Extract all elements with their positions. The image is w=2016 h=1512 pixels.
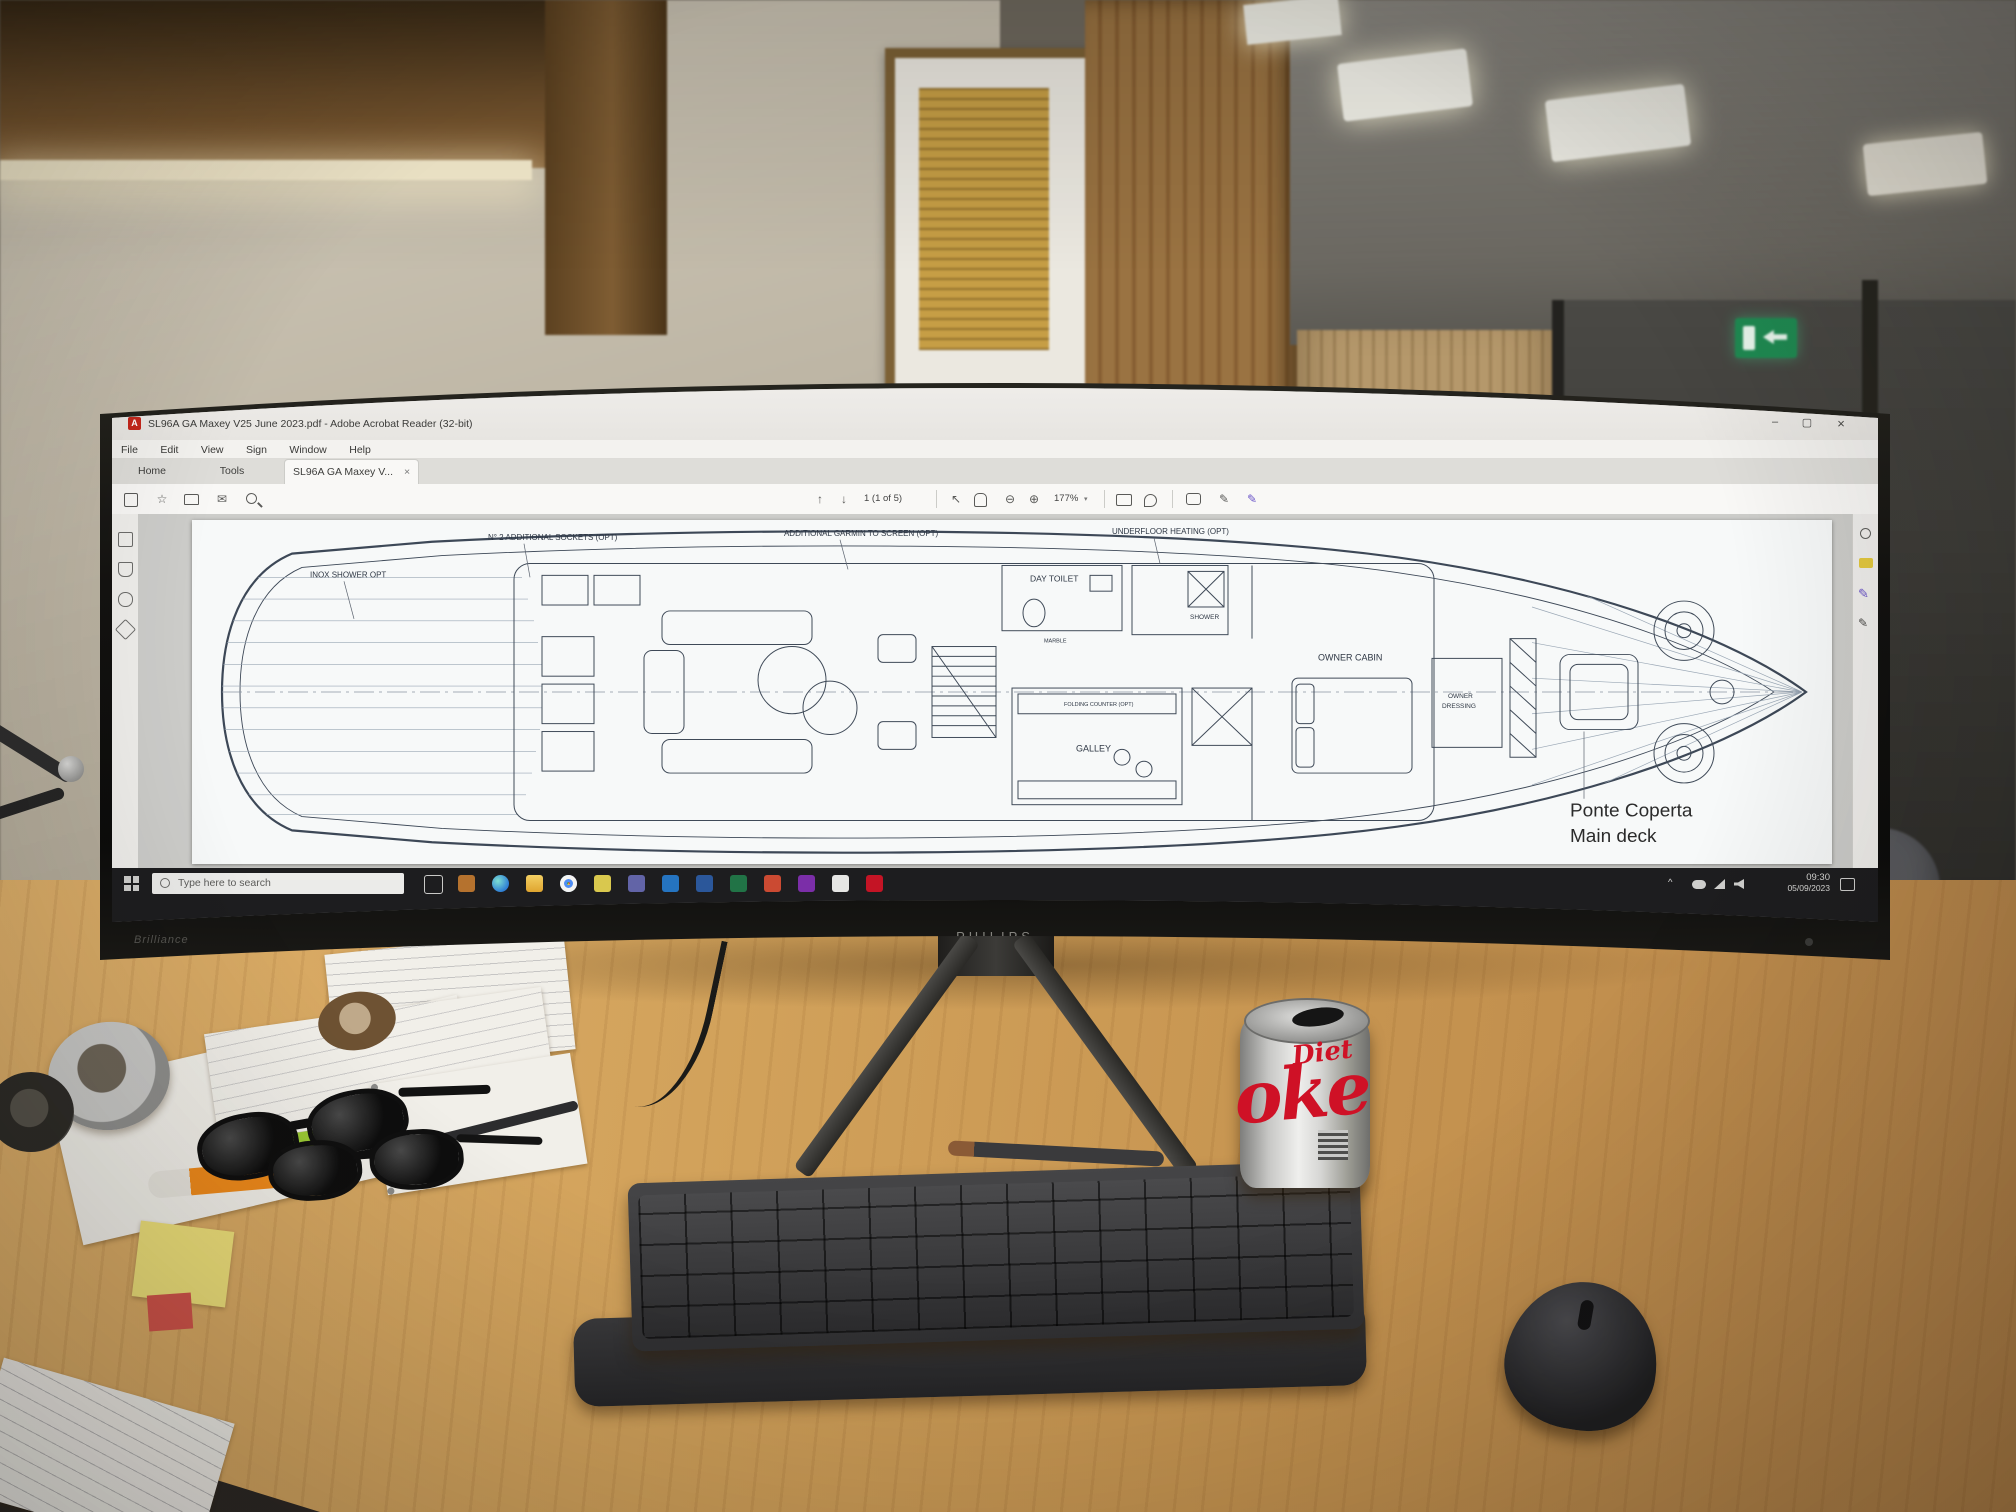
sheet-title-line1: Ponte Coperta (1570, 801, 1693, 822)
zoom-in-icon[interactable]: ⊕ (1026, 491, 1042, 507)
tab-bar: Home Tools SL96A GA Maxey V... × (112, 459, 1878, 484)
label-marble: MARBLE (1044, 639, 1067, 645)
tab-home[interactable]: Home (116, 459, 188, 484)
menu-edit[interactable]: Edit (151, 442, 187, 456)
app-icon-bronze[interactable] (458, 875, 475, 892)
page-thumbnails-icon[interactable] (118, 532, 133, 547)
sunglasses-lens (266, 1137, 364, 1203)
network-icon[interactable] (1714, 879, 1725, 889)
keyboard-keys (638, 1173, 1354, 1339)
search-glass-icon (160, 878, 170, 888)
can-coke-text: oke (1231, 1044, 1373, 1140)
search-icon-handle (257, 502, 263, 508)
photo-scene: Diet oke A SL96A GA Maxey V25 June 2023.… (0, 0, 2016, 1512)
stamp-tool-icon[interactable]: ✎ (1858, 616, 1868, 630)
cabinet-soffit (0, 0, 545, 168)
sunglasses-arm (456, 1134, 542, 1145)
sunglasses-lens (368, 1126, 466, 1192)
sheet-title-line2: Main deck (1570, 826, 1657, 847)
menu-file[interactable]: File (112, 442, 147, 456)
excel-icon[interactable] (730, 875, 747, 892)
select-tool-icon[interactable]: ↖ (948, 491, 964, 507)
yacht-ga-plan: INOX SHOWER OPT N° 2 ADDITIONAL SOCKETS … (192, 520, 1832, 864)
sunglasses-bridge (353, 1150, 374, 1159)
exit-sign-arrow (1763, 330, 1787, 344)
outlook-icon[interactable] (662, 875, 679, 892)
tray-clock[interactable]: 09:30 05/09/2023 (1760, 873, 1830, 894)
page-indicator[interactable]: 1 (1 of 5) (864, 493, 902, 504)
zoom-out-icon[interactable]: ⊖ (1002, 491, 1018, 507)
powerpoint-icon[interactable] (764, 875, 781, 892)
label-dressing: DRESSING (1442, 703, 1476, 710)
label-day-toilet: DAY TOILET (1030, 573, 1078, 583)
toolbar-divider (1104, 490, 1105, 508)
comment-icon[interactable] (1186, 493, 1201, 505)
file-explorer-icon[interactable] (526, 875, 543, 892)
teams-icon[interactable] (628, 875, 645, 892)
menu-sign[interactable]: Sign (237, 442, 276, 456)
app-icon-purple[interactable] (798, 875, 815, 892)
pencil-icon[interactable]: ✎ (1216, 491, 1232, 507)
sheet-title: Ponte Coperta Main deck (1570, 801, 1693, 848)
task-view-icon[interactable] (424, 875, 443, 894)
zoom-level[interactable]: 177% (1054, 493, 1078, 504)
under-cabinet-light (0, 160, 532, 180)
label-owner: OWNER (1448, 693, 1473, 700)
tab-document-label: SL96A GA Maxey V... (293, 466, 393, 478)
sticky-notes-icon[interactable] (594, 875, 611, 892)
tray-caret[interactable]: ^ (1668, 878, 1672, 889)
label-garmin-screen: ADDITIONAL GARMIN TO SCREEN (OPT) (784, 529, 939, 538)
label-shower: SHOWER (1190, 614, 1220, 621)
fill-sign-tool-icon[interactable]: ✎ (1858, 586, 1869, 602)
menu-bar: File Edit View Sign Window Help (112, 440, 1878, 459)
sunglasses-arm (398, 1085, 490, 1097)
word-icon[interactable] (696, 875, 713, 892)
previous-page-icon[interactable]: ↑ (812, 491, 828, 507)
acrobat-app-icon: A (128, 417, 141, 430)
exit-sign (1735, 318, 1797, 358)
toolbar-divider (1172, 490, 1173, 508)
pdf-page: INOX SHOWER OPT N° 2 ADDITIONAL SOCKETS … (192, 520, 1832, 864)
window-title: SL96A GA Maxey V25 June 2023.pdf - Adobe… (148, 418, 473, 430)
start-button[interactable] (124, 876, 139, 891)
fit-width-icon[interactable] (1116, 494, 1132, 506)
edge-icon[interactable] (492, 875, 509, 892)
attachments-icon[interactable] (118, 592, 133, 607)
search-placeholder: Type here to search (178, 877, 271, 889)
maximize-button[interactable]: ▢ (1796, 416, 1818, 429)
comment-tool-icon[interactable] (1859, 558, 1873, 568)
desk-lamp-joint (58, 756, 84, 782)
cabinet-side-panel (545, 0, 667, 335)
acrobat-toolbar: ☆ ✉ ↑ ↓ 1 (1 of 5) ↖ ⊖ ⊕ 177% ▾ (112, 484, 1878, 515)
label-underfloor-heating: UNDERFLOOR HEATING (OPT) (1112, 527, 1229, 536)
exit-sign-figure (1743, 326, 1755, 350)
tab-close-icon[interactable]: × (404, 466, 410, 478)
print-icon[interactable] (184, 494, 199, 505)
label-inox-shower: INOX SHOWER OPT (310, 570, 386, 579)
menu-help[interactable]: Help (340, 442, 380, 456)
document-canvas[interactable]: INOX SHOWER OPT N° 2 ADDITIONAL SOCKETS … (138, 514, 1852, 868)
onedrive-icon[interactable] (1692, 880, 1706, 889)
keyboard (628, 1161, 1365, 1352)
rotate-view-icon[interactable] (1144, 494, 1157, 507)
power-led (1805, 938, 1813, 946)
notification-icon[interactable] (1840, 878, 1855, 891)
monitor-screen: A SL96A GA Maxey V25 June 2023.pdf - Ado… (112, 382, 1878, 922)
taskbar-curve-cap (112, 898, 1878, 922)
right-panel-rail: ✎ ✎ (1852, 514, 1879, 868)
label-galley: GALLEY (1076, 743, 1111, 753)
left-panel-rail (112, 514, 139, 868)
search-icon[interactable] (246, 493, 257, 504)
star-icon[interactable]: ☆ (154, 491, 170, 507)
taskbar-search[interactable]: Type here to search (152, 873, 404, 894)
diet-coke-can: Diet oke (1240, 998, 1370, 1188)
acrobat-taskbar-icon[interactable] (866, 875, 883, 892)
menu-window[interactable]: Window (280, 442, 335, 456)
fill-sign-icon[interactable]: ✎ (1244, 491, 1260, 507)
sticky-note-red (147, 1293, 193, 1332)
plan-labels: INOX SHOWER OPT N° 2 ADDITIONAL SOCKETS … (310, 527, 1476, 753)
certificate (919, 88, 1049, 350)
app-icon-white[interactable] (832, 875, 849, 892)
tab-document[interactable]: SL96A GA Maxey V... × (284, 459, 419, 485)
bookmarks-icon[interactable] (118, 562, 133, 577)
minimize-button[interactable]: – (1764, 416, 1786, 428)
search-tool-icon[interactable] (1860, 528, 1871, 539)
save-icon[interactable] (124, 493, 138, 507)
hand-tool-icon[interactable] (974, 493, 987, 507)
menu-view[interactable]: View (192, 442, 233, 456)
next-page-icon[interactable]: ↓ (836, 491, 852, 507)
label-additional-sockets: N° 2 ADDITIONAL SOCKETS (OPT) (488, 533, 618, 542)
toolbar-divider (936, 490, 937, 508)
chrome-icon[interactable] (560, 875, 577, 892)
ultrawide-monitor: A SL96A GA Maxey V25 June 2023.pdf - Ado… (100, 372, 1890, 960)
tab-tools[interactable]: Tools (196, 459, 268, 484)
mail-icon[interactable]: ✉ (214, 491, 230, 507)
windows-taskbar: Type here to search ^ (112, 868, 1878, 922)
layers-icon[interactable] (115, 619, 136, 640)
close-button[interactable]: × (1830, 416, 1852, 431)
mouse-scroll-wheel (1577, 1299, 1595, 1331)
label-folding-counter: FOLDING COUNTER (OPT) (1064, 702, 1134, 708)
label-owner-cabin: OWNER CABIN (1318, 652, 1382, 662)
zoom-caret-icon[interactable]: ▾ (1084, 495, 1088, 503)
framed-certificate (885, 48, 1105, 413)
tray-date: 05/09/2023 (1760, 884, 1830, 894)
volume-icon[interactable] (1734, 879, 1744, 889)
can-qr-code (1318, 1130, 1348, 1160)
callout-leaders (344, 538, 1584, 799)
